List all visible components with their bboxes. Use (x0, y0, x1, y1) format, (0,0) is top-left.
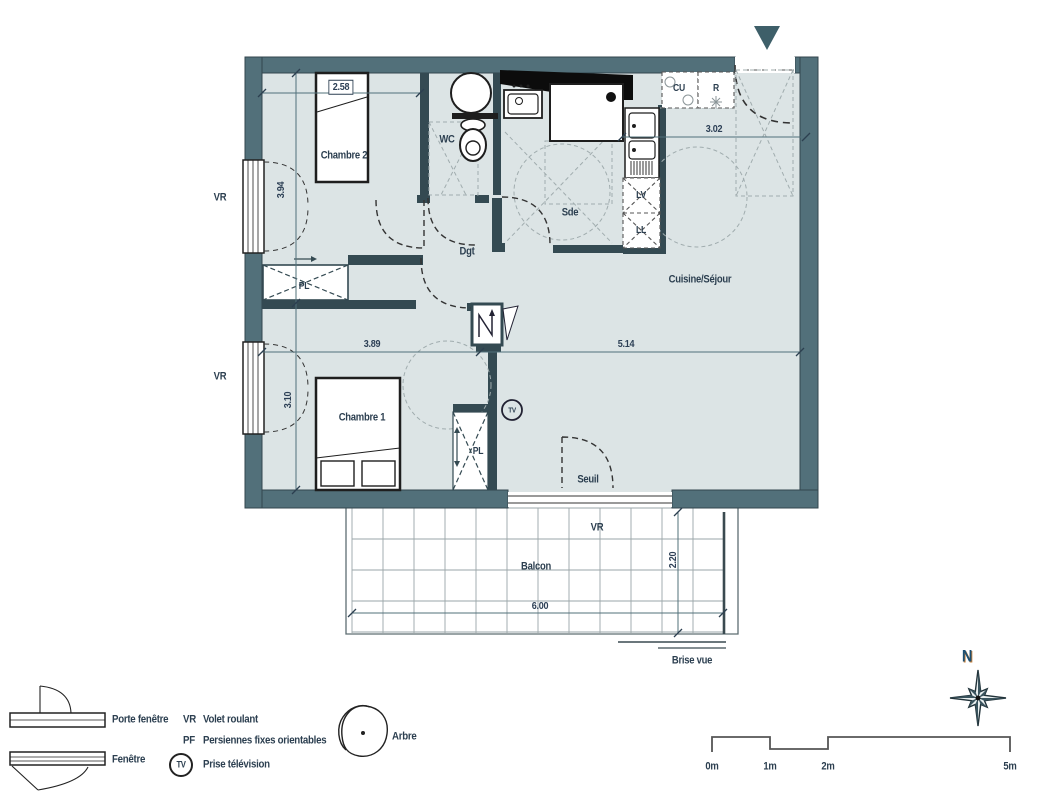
vr-label-window-bottom: VR (214, 372, 227, 383)
dim-left-lower: 3.10 (283, 392, 294, 409)
floor-plan-drawing (0, 0, 1040, 800)
legend-pf-abbr: PF (183, 736, 195, 747)
room-label-chambre2: Chambre 2 (321, 151, 368, 162)
legend-vr-abbr: VR (183, 715, 196, 726)
dim-cuisine-width: 3.02 (706, 124, 723, 135)
vr-label-window-top: VR (214, 193, 227, 204)
dim-balcon-width: 6.00 (532, 601, 549, 612)
label-seuil: Seuil (577, 475, 598, 486)
legend-fenetre-icon (10, 752, 105, 790)
compass-north-label: N (962, 648, 972, 665)
shower-tray (550, 84, 623, 141)
compass-rose-icon (950, 670, 1006, 726)
legend-porte-fenetre-icon (10, 686, 105, 727)
dim-left-upper: 3.94 (276, 182, 287, 199)
legend-vr-label: Volet roulant (203, 715, 258, 726)
room-label-balcon: Balcon (521, 562, 551, 573)
dim-chambre2-width: 2.58 (328, 80, 353, 95)
legend-fenetre-label: Fenêtre (112, 755, 145, 766)
vr-label-balcony: VR (591, 523, 604, 534)
legend-pf-label: Persiennes fixes orientables (203, 736, 326, 747)
room-label-cuisine-sejour: Cuisine/Séjour (669, 275, 732, 286)
legend-tv-label: Prise télévision (203, 760, 270, 771)
appliance-boxes-lv-ll (623, 178, 660, 248)
appliance-label-ll: LL (636, 226, 646, 236)
tv-socket-label: TV (508, 406, 515, 414)
scale-bar (712, 737, 1010, 752)
legend-porte-fenetre-label: Porte fenêtre (112, 715, 168, 726)
room-label-chambre1: Chambre 1 (339, 413, 386, 424)
label-brise-vue: Brise vue (672, 656, 712, 667)
room-label-sde: Sde (562, 208, 579, 219)
legend-tv-abbr: TV (176, 761, 185, 770)
toilet (460, 119, 486, 161)
room-label-wc: WC (439, 135, 454, 146)
balcony-door-frame (508, 492, 672, 507)
scale-label-1m: 1m (763, 762, 776, 773)
legend-arbre-label: Arbre (392, 732, 417, 743)
closet-label-pl-upper: PL (299, 282, 309, 292)
dim-balcon-depth: 2.20 (668, 552, 679, 569)
room-label-dgt: Dgt (460, 247, 475, 258)
kitchen-sink (625, 108, 659, 178)
floor-plan-page: Chambre 2 Chambre 1 WC Sde Dgt Cuisine/S… (0, 0, 1040, 800)
scale-label-2m: 2m (821, 762, 834, 773)
scale-label-5m: 5m (1003, 762, 1016, 773)
bed-chambre1 (316, 378, 400, 490)
appliance-label-cu: CU (673, 84, 685, 94)
legend-tree-icon (339, 706, 388, 757)
sde-washbasin (504, 85, 542, 119)
balcony (346, 508, 738, 648)
dim-chambre1-width: 3.89 (364, 339, 381, 350)
scale-label-0m: 0m (705, 762, 718, 773)
dim-sejour-width: 5.14 (618, 339, 635, 350)
closet-label-pl-lower: PL (473, 447, 483, 457)
appliance-label-lv: LV (636, 191, 646, 201)
appliance-label-r: R (713, 84, 719, 94)
entrance-marker-icon (754, 26, 780, 50)
